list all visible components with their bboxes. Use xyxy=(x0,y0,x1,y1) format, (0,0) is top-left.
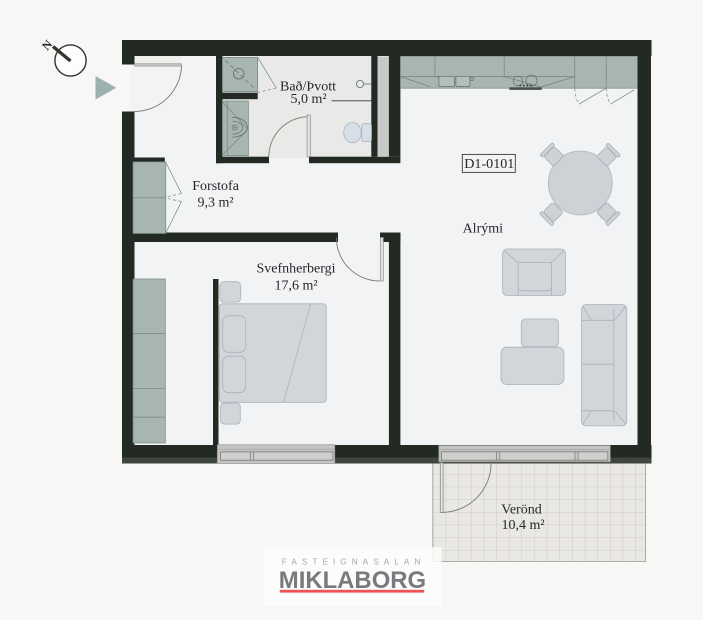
svg-text:FASTEIGNASALAN: FASTEIGNASALAN xyxy=(282,558,426,567)
svg-text:Alrými: Alrými xyxy=(463,222,504,237)
svg-text:Forstofa: Forstofa xyxy=(192,179,239,194)
svg-text:10,4 m²: 10,4 m² xyxy=(501,518,544,533)
svg-text:Verönd: Verönd xyxy=(501,503,541,518)
svg-text:17,6 m²: 17,6 m² xyxy=(274,279,317,294)
svg-text:5,0 m²: 5,0 m² xyxy=(291,92,327,107)
svg-text:Svefnherbergi: Svefnherbergi xyxy=(256,262,335,277)
svg-text:D1-0101: D1-0101 xyxy=(464,156,514,172)
svg-text:9,3 m²: 9,3 m² xyxy=(198,196,234,211)
